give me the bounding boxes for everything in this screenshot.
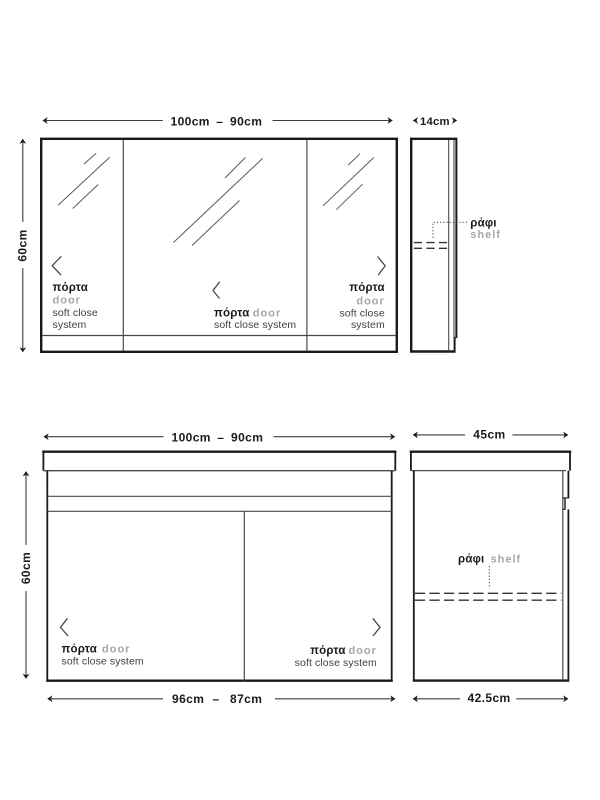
svg-text:60cm: 60cm	[19, 552, 33, 584]
svg-text:14cm: 14cm	[420, 116, 450, 128]
svg-text:–: –	[212, 692, 219, 706]
svg-text:90cm: 90cm	[231, 431, 263, 445]
svg-text:87cm: 87cm	[230, 692, 262, 706]
svg-text:90cm: 90cm	[230, 115, 262, 129]
svg-text:ράφι: ράφι	[470, 217, 496, 229]
svg-text:soft close: soft close	[53, 307, 98, 319]
svg-text:soft close system: soft close system	[295, 657, 377, 669]
svg-text:system: system	[53, 319, 87, 331]
svg-text:soft close system: soft close system	[62, 655, 144, 667]
svg-text:soft close: soft close	[339, 308, 384, 320]
svg-text:100cm: 100cm	[172, 431, 211, 445]
svg-text:πόρτα: πόρτα	[62, 643, 98, 655]
svg-text:πόρτα: πόρτα	[310, 645, 346, 657]
svg-text:shelf: shelf	[470, 229, 501, 241]
svg-text:60cm: 60cm	[16, 229, 30, 261]
svg-text:door: door	[53, 295, 81, 307]
svg-text:42.5cm: 42.5cm	[468, 691, 511, 705]
svg-text:ράφι: ράφι	[458, 553, 484, 565]
svg-text:door: door	[102, 643, 130, 655]
svg-text:door: door	[356, 296, 384, 308]
svg-text:πόρτα: πόρτα	[214, 307, 250, 319]
svg-text:πόρτα: πόρτα	[53, 282, 89, 294]
svg-text:45cm: 45cm	[473, 428, 505, 442]
svg-text:system: system	[351, 319, 385, 331]
svg-text:door: door	[253, 307, 281, 319]
svg-text:96cm: 96cm	[172, 692, 204, 706]
svg-text:100cm: 100cm	[171, 115, 210, 129]
svg-text:–: –	[216, 115, 223, 129]
svg-text:πόρτα: πόρτα	[349, 282, 385, 294]
svg-text:shelf: shelf	[491, 553, 522, 565]
svg-text:door: door	[348, 645, 376, 657]
svg-text:soft close system: soft close system	[214, 319, 296, 331]
svg-text:–: –	[217, 431, 224, 445]
